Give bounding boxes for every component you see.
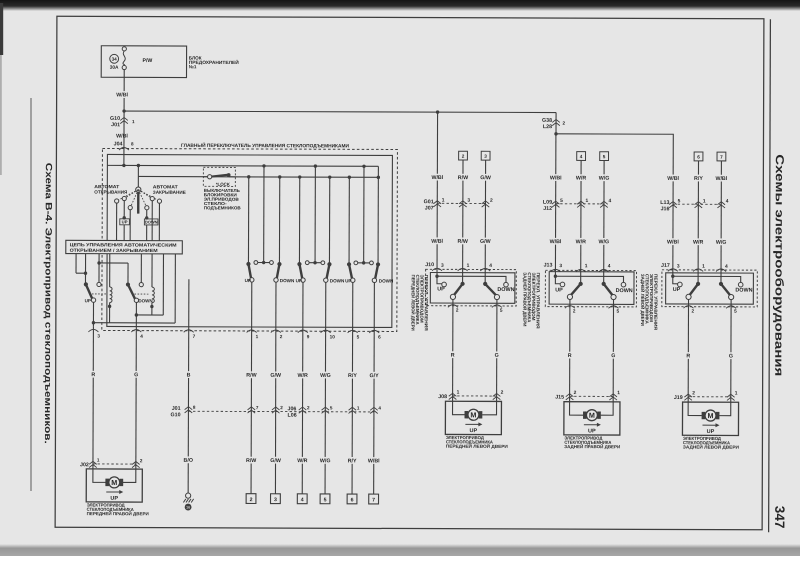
svg-text:UP: UP: [110, 496, 118, 502]
svg-text:M: M: [708, 411, 714, 420]
svg-text:L13: L13: [660, 200, 669, 206]
svg-text:J12: J12: [543, 206, 552, 212]
svg-text:2: 2: [250, 497, 253, 503]
svg-text:347: 347: [772, 506, 787, 529]
svg-text:DOWN: DOWN: [379, 279, 394, 284]
svg-text:R/Y: R/Y: [348, 373, 357, 379]
svg-text:W/G: W/G: [599, 176, 610, 182]
svg-text:1: 1: [97, 458, 100, 463]
svg-text:J17: J17: [661, 263, 670, 269]
svg-text:UP: UP: [85, 298, 91, 303]
svg-text:DOWN: DOWN: [138, 298, 152, 303]
svg-text:ЗАДНЕЙ ПРАВОЙ ДВЕРИ: ЗАДНЕЙ ПРАВОЙ ДВЕРИ: [522, 272, 527, 326]
svg-text:W/R: W/R: [693, 240, 703, 246]
svg-text:J19: J19: [674, 395, 683, 401]
svg-text:L28: L28: [543, 124, 552, 130]
svg-text:J06: J06: [288, 406, 297, 412]
svg-text:3: 3: [484, 154, 487, 159]
svg-text:UP: UP: [470, 428, 478, 434]
svg-text:DOWN: DOWN: [735, 288, 752, 294]
svg-text:J02: J02: [80, 462, 89, 468]
svg-text:5: 5: [324, 497, 327, 503]
svg-text:2: 2: [563, 121, 566, 126]
svg-text:W/Bl: W/Bl: [550, 239, 562, 245]
svg-text:W/Bl: W/Bl: [667, 176, 679, 182]
svg-text:*LOCK: *LOCK: [216, 182, 231, 187]
svg-text:5: 5: [357, 334, 360, 339]
svg-text:W/R: W/R: [576, 239, 586, 245]
svg-text:8: 8: [193, 405, 196, 410]
svg-text:DOWN: DOWN: [330, 278, 345, 283]
svg-text:J08: J08: [438, 394, 447, 400]
svg-text:4: 4: [378, 406, 381, 411]
svg-text:W/Bl: W/Bl: [550, 175, 562, 181]
svg-text:ОТКРЫВАНИЯ: ОТКРЫВАНИЯ: [94, 190, 127, 195]
svg-text:3: 3: [97, 334, 100, 339]
svg-text:3: 3: [274, 497, 277, 503]
svg-text:R: R: [451, 353, 455, 359]
svg-text:4: 4: [726, 199, 729, 205]
svg-text:L09: L09: [543, 200, 552, 206]
svg-text:G38: G38: [542, 118, 552, 124]
svg-text:W/G: W/G: [320, 458, 331, 464]
svg-text:16: 16: [186, 506, 190, 510]
svg-text:5: 5: [603, 154, 606, 159]
svg-text:5: 5: [560, 198, 563, 204]
svg-text:W/R: W/R: [576, 176, 586, 182]
svg-text:DOWN: DOWN: [497, 287, 514, 293]
svg-text:2: 2: [140, 458, 143, 463]
svg-text:G: G: [611, 353, 615, 359]
svg-text:7: 7: [256, 405, 259, 410]
svg-text:2: 2: [692, 390, 695, 396]
svg-text:G/W: G/W: [270, 458, 281, 464]
svg-text:7: 7: [720, 155, 723, 160]
svg-text:W/Bl: W/Bl: [368, 458, 380, 464]
svg-text:8: 8: [131, 141, 134, 146]
svg-text:6: 6: [378, 335, 381, 340]
svg-text:2: 2: [501, 390, 504, 396]
svg-text:2: 2: [490, 198, 493, 204]
svg-text:6: 6: [351, 497, 354, 503]
svg-text:6: 6: [697, 155, 700, 160]
svg-text:G: G: [729, 354, 733, 360]
svg-text:M: M: [470, 410, 476, 419]
svg-text:W/G: W/G: [320, 373, 331, 379]
svg-text:W/R: W/R: [297, 458, 307, 464]
svg-text:30A: 30A: [110, 65, 119, 71]
svg-text:2: 2: [573, 309, 576, 314]
svg-text:J13: J13: [544, 263, 553, 269]
svg-text:5: 5: [678, 198, 681, 204]
svg-text:3: 3: [467, 198, 470, 204]
svg-text:UP: UP: [588, 429, 596, 435]
svg-text:M: M: [589, 411, 595, 420]
svg-text:UP: UP: [437, 287, 445, 293]
svg-text:R/W: R/W: [458, 239, 468, 245]
svg-text:1: 1: [585, 263, 588, 269]
svg-text:W/Bl: W/Bl: [116, 134, 128, 140]
svg-text:1: 1: [702, 264, 705, 270]
svg-text:UP: UP: [345, 278, 351, 283]
svg-text:UP: UP: [707, 429, 715, 435]
svg-text:5: 5: [500, 308, 503, 313]
svg-text:1: 1: [467, 263, 470, 269]
svg-text:4: 4: [140, 334, 143, 339]
svg-text:3: 3: [559, 263, 562, 269]
svg-text:DOWN: DOWN: [145, 220, 158, 225]
svg-text:R/W: R/W: [246, 458, 256, 464]
svg-text:G10: G10: [170, 412, 180, 418]
svg-text:7: 7: [372, 498, 375, 504]
svg-text:№1: №1: [189, 64, 197, 69]
svg-text:ЗАДНЕЙ ЛЕВОЙ ДВЕРИ: ЗАДНЕЙ ЛЕВОЙ ДВЕРИ: [683, 444, 739, 449]
svg-text:R: R: [91, 372, 95, 378]
svg-text:R/Y: R/Y: [694, 176, 703, 182]
svg-text:3: 3: [441, 263, 444, 269]
svg-text:4: 4: [580, 154, 583, 159]
svg-text:L06: L06: [288, 413, 297, 419]
svg-text:Схема В-4. Электропривод стекл: Схема В-4. Электропривод стеклоподъемник…: [43, 163, 54, 444]
svg-text:4: 4: [489, 263, 492, 269]
svg-text:34: 34: [112, 57, 118, 62]
svg-text:1: 1: [442, 198, 445, 204]
svg-text:G/W: G/W: [480, 175, 491, 181]
svg-text:DOWN: DOWN: [616, 288, 633, 294]
svg-text:2: 2: [691, 309, 694, 314]
svg-text:DOWN: DOWN: [280, 278, 295, 283]
svg-text:W/Bl: W/Bl: [715, 176, 727, 182]
svg-text:ЗАДНЕЙ ПРАВОЙ ДВЕРИ: ЗАДНЕЙ ПРАВОЙ ДВЕРИ: [564, 444, 620, 449]
svg-text:W/Bl: W/Bl: [431, 239, 443, 245]
svg-text:W/Bl: W/Bl: [116, 92, 128, 98]
svg-text:5: 5: [734, 309, 737, 314]
svg-text:1: 1: [617, 390, 620, 396]
svg-text:1: 1: [585, 198, 588, 204]
svg-text:ПЕРЕДНЕЙ ЛЕВОЙ ДВЕРИ: ПЕРЕДНЕЙ ЛЕВОЙ ДВЕРИ: [446, 444, 508, 449]
svg-text:7: 7: [193, 334, 196, 339]
svg-text:G01: G01: [424, 199, 434, 205]
svg-text:Схемы электрооборудования: Схемы электрооборудования: [772, 154, 785, 376]
svg-text:J07: J07: [425, 205, 434, 211]
svg-text:ЗАКРЫВАНИЕ: ЗАКРЫВАНИЕ: [153, 190, 186, 195]
svg-text:2: 2: [456, 308, 459, 313]
svg-text:G: G: [134, 372, 138, 378]
svg-text:W/G: W/G: [716, 240, 727, 246]
svg-text:ЗАДНЕЙ ЛЕВОЙ ДВЕРИ: ЗАДНЕЙ ЛЕВОЙ ДВЕРИ: [640, 274, 645, 326]
svg-text:UP: UP: [296, 278, 302, 283]
svg-text:G10: G10: [110, 116, 120, 122]
svg-text:4: 4: [608, 198, 611, 204]
svg-text:ОТКРЫВАНИЕМ / ЗАКРЫВАНИЕМ: ОТКРЫВАНИЕМ / ЗАКРЫВАНИЕМ: [70, 248, 158, 253]
svg-text:G/W: G/W: [270, 373, 281, 379]
svg-text:J16: J16: [661, 206, 670, 212]
svg-text:R/W: R/W: [246, 373, 256, 379]
svg-text:3: 3: [677, 264, 680, 270]
svg-text:1: 1: [703, 198, 706, 204]
svg-text:P/W: P/W: [143, 58, 153, 64]
svg-text:W/Bl: W/Bl: [667, 240, 679, 246]
svg-text:ПЕРЕДНЕЙ ЛЕВОЙ ДВЕРИ: ПЕРЕДНЕЙ ЛЕВОЙ ДВЕРИ: [411, 275, 416, 331]
svg-text:1: 1: [457, 390, 460, 396]
svg-text:R: R: [568, 353, 572, 359]
svg-text:J01: J01: [172, 406, 181, 412]
svg-text:R: R: [686, 353, 690, 359]
svg-text:1: 1: [132, 119, 135, 124]
svg-text:G/Y: G/Y: [369, 373, 379, 379]
svg-text:UP: UP: [555, 288, 563, 294]
svg-text:9: 9: [307, 334, 310, 339]
svg-text:4: 4: [725, 264, 728, 270]
svg-text:АВТОМАТ: АВТОМАТ: [153, 184, 178, 189]
svg-text:2: 2: [307, 405, 310, 410]
svg-text:G/W: G/W: [480, 239, 491, 245]
svg-text:B: B: [187, 372, 191, 378]
svg-text:АВТОМАТ: АВТОМАТ: [94, 184, 119, 189]
svg-text:W/Bl: W/Bl: [431, 175, 443, 181]
svg-text:J15: J15: [555, 395, 564, 401]
svg-text:B/O: B/O: [184, 458, 193, 464]
svg-text:4: 4: [301, 497, 304, 503]
svg-text:4: 4: [608, 263, 611, 269]
svg-text:10: 10: [330, 334, 336, 339]
svg-text:M: M: [111, 478, 117, 487]
svg-text:2: 2: [280, 334, 283, 339]
svg-text:2: 2: [280, 405, 283, 410]
svg-text:UP: UP: [673, 287, 681, 293]
svg-text:2: 2: [574, 390, 577, 396]
svg-text:W/G: W/G: [599, 239, 610, 245]
svg-text:UP: UP: [122, 219, 128, 224]
svg-text:R/W: R/W: [458, 175, 468, 181]
svg-text:5: 5: [616, 309, 619, 314]
svg-text:UP: UP: [245, 278, 251, 283]
svg-text:J01: J01: [111, 122, 120, 128]
svg-text:R/Y: R/Y: [348, 458, 357, 464]
svg-text:ПОДЪЕМНИКОВ: ПОДЪЕМНИКОВ: [204, 205, 241, 210]
svg-text:J10: J10: [425, 262, 434, 268]
svg-text:W/R: W/R: [297, 373, 307, 379]
svg-text:J04: J04: [114, 141, 123, 147]
svg-text:5: 5: [330, 405, 333, 410]
svg-text:G: G: [495, 353, 499, 359]
svg-text:ПЕРЕДНЕЙ ПРАВОЙ ДВЕРИ: ПЕРЕДНЕЙ ПРАВОЙ ДВЕРИ: [87, 511, 149, 516]
svg-text:1: 1: [735, 391, 738, 397]
svg-text:2: 2: [462, 154, 465, 159]
svg-text:1: 1: [256, 334, 259, 339]
svg-text:1: 1: [357, 405, 360, 410]
